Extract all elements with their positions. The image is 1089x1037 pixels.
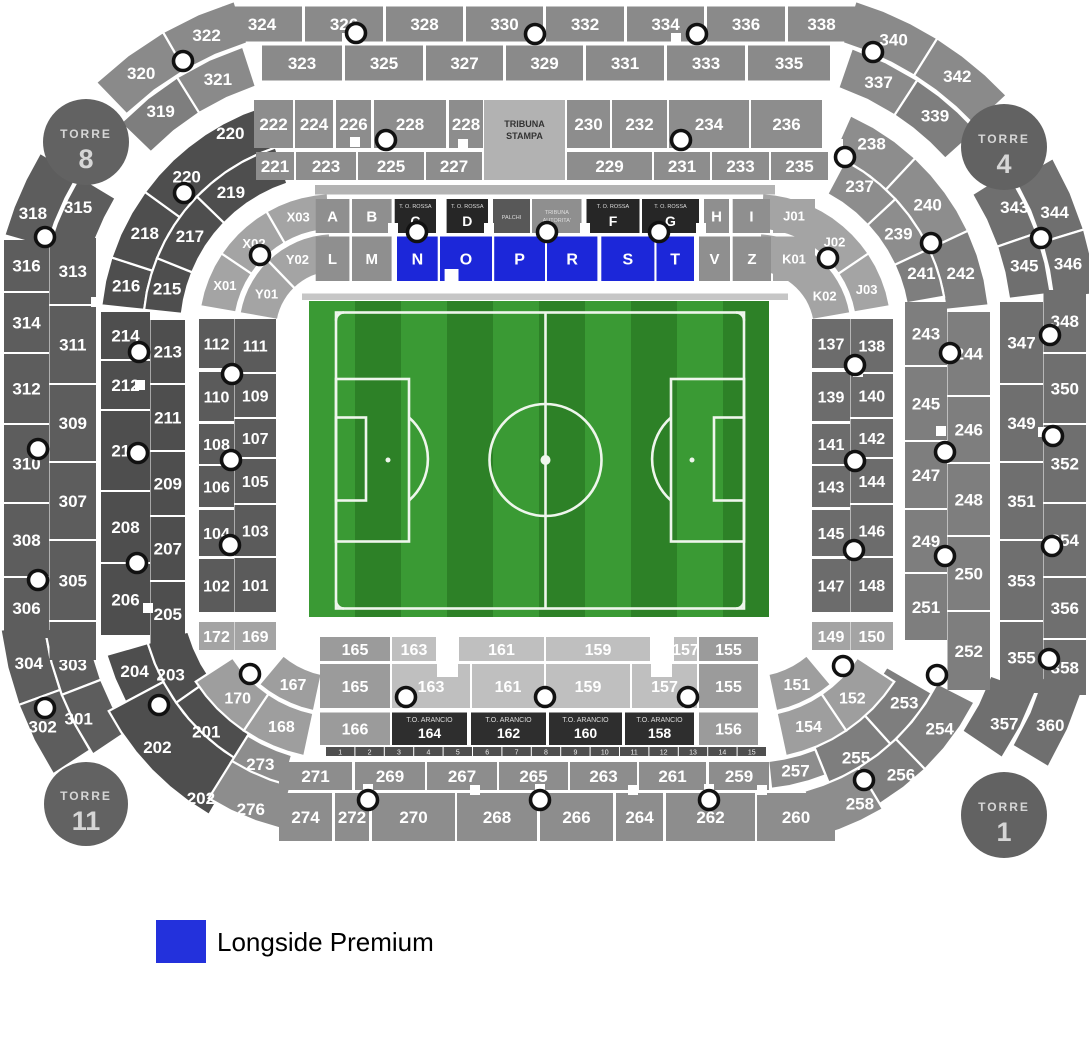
svg-text:320: 320 xyxy=(127,64,155,83)
svg-text:161: 161 xyxy=(495,679,522,696)
svg-text:167: 167 xyxy=(280,677,307,694)
svg-text:332: 332 xyxy=(571,15,599,34)
svg-text:15: 15 xyxy=(748,750,756,757)
svg-text:226: 226 xyxy=(339,115,367,134)
svg-text:263: 263 xyxy=(589,767,617,786)
svg-text:268: 268 xyxy=(483,808,511,827)
svg-text:204: 204 xyxy=(120,662,149,681)
svg-text:241: 241 xyxy=(907,264,935,283)
svg-text:152: 152 xyxy=(839,691,866,708)
svg-text:237: 237 xyxy=(845,177,873,196)
svg-text:338: 338 xyxy=(807,15,835,34)
svg-text:13: 13 xyxy=(689,750,697,757)
svg-text:169: 169 xyxy=(242,629,269,646)
svg-text:K02: K02 xyxy=(813,289,837,304)
svg-text:111: 111 xyxy=(243,338,268,355)
svg-text:F: F xyxy=(609,213,618,229)
svg-text:276: 276 xyxy=(237,800,265,819)
svg-text:252: 252 xyxy=(955,642,983,661)
svg-text:T. O. ROSSA: T. O. ROSSA xyxy=(451,204,484,210)
svg-text:251: 251 xyxy=(912,598,940,617)
svg-text:8: 8 xyxy=(78,144,93,174)
svg-text:10: 10 xyxy=(601,750,609,757)
svg-text:239: 239 xyxy=(884,224,912,243)
svg-text:Longside Premium: Longside Premium xyxy=(217,927,434,957)
svg-text:356: 356 xyxy=(1051,599,1079,618)
svg-text:256: 256 xyxy=(887,766,915,785)
svg-text:270: 270 xyxy=(399,808,427,827)
svg-text:4: 4 xyxy=(996,149,1011,179)
svg-text:302: 302 xyxy=(29,718,57,737)
svg-text:163: 163 xyxy=(401,642,428,659)
svg-text:265: 265 xyxy=(519,767,547,786)
svg-text:221: 221 xyxy=(261,157,289,176)
svg-text:A: A xyxy=(327,208,338,225)
svg-text:264: 264 xyxy=(625,808,654,827)
svg-text:213: 213 xyxy=(154,343,182,362)
svg-text:228: 228 xyxy=(396,115,424,134)
svg-text:101: 101 xyxy=(242,578,269,595)
svg-text:329: 329 xyxy=(530,54,558,73)
svg-text:257: 257 xyxy=(781,762,809,781)
svg-text:105: 105 xyxy=(242,474,269,491)
svg-text:K01: K01 xyxy=(782,251,806,266)
svg-text:306: 306 xyxy=(12,599,40,618)
svg-text:140: 140 xyxy=(858,388,885,405)
svg-text:225: 225 xyxy=(377,157,405,176)
svg-text:261: 261 xyxy=(658,767,686,786)
svg-text:158: 158 xyxy=(648,725,672,741)
svg-text:I: I xyxy=(749,208,753,225)
svg-text:344: 344 xyxy=(1040,203,1069,222)
svg-text:M: M xyxy=(366,251,379,268)
svg-text:202: 202 xyxy=(143,738,171,757)
svg-text:TORRE: TORRE xyxy=(60,789,112,803)
svg-text:243: 243 xyxy=(912,325,940,344)
svg-text:211: 211 xyxy=(154,409,181,428)
svg-text:165: 165 xyxy=(342,642,369,659)
svg-text:345: 345 xyxy=(1010,257,1038,276)
svg-text:2: 2 xyxy=(368,750,372,757)
svg-text:206: 206 xyxy=(111,591,139,610)
svg-text:328: 328 xyxy=(410,15,438,34)
svg-text:316: 316 xyxy=(12,257,40,276)
svg-text:107: 107 xyxy=(242,431,269,448)
svg-text:301: 301 xyxy=(65,709,93,728)
svg-text:331: 331 xyxy=(611,54,639,73)
svg-text:219: 219 xyxy=(217,183,245,202)
svg-text:157: 157 xyxy=(672,642,699,659)
svg-text:143: 143 xyxy=(818,479,845,496)
svg-text:T: T xyxy=(670,252,680,269)
svg-text:109: 109 xyxy=(242,388,269,405)
svg-text:1: 1 xyxy=(996,817,1011,847)
svg-text:T.O. ARANCIO: T.O. ARANCIO xyxy=(562,717,609,724)
svg-text:337: 337 xyxy=(864,73,892,92)
svg-text:314: 314 xyxy=(12,314,41,333)
svg-text:334: 334 xyxy=(651,15,680,34)
svg-text:248: 248 xyxy=(955,491,983,510)
svg-text:238: 238 xyxy=(857,135,885,154)
svg-text:223: 223 xyxy=(312,157,340,176)
svg-text:242: 242 xyxy=(947,264,975,283)
svg-text:149: 149 xyxy=(818,629,845,646)
svg-text:T.O. ARANCIO: T.O. ARANCIO xyxy=(636,717,683,724)
svg-text:142: 142 xyxy=(858,431,885,448)
svg-text:172: 172 xyxy=(203,629,230,646)
svg-text:1: 1 xyxy=(338,750,342,757)
svg-text:L: L xyxy=(328,251,337,268)
svg-text:12: 12 xyxy=(660,750,668,757)
svg-text:250: 250 xyxy=(955,565,983,584)
svg-text:205: 205 xyxy=(154,605,182,624)
svg-text:342: 342 xyxy=(943,67,971,86)
svg-text:147: 147 xyxy=(818,578,845,595)
svg-text:245: 245 xyxy=(912,395,940,414)
svg-text:249: 249 xyxy=(912,532,940,551)
svg-text:H: H xyxy=(711,208,722,225)
svg-text:148: 148 xyxy=(858,578,885,595)
svg-text:311: 311 xyxy=(59,336,86,355)
svg-text:233: 233 xyxy=(726,157,754,176)
svg-text:N: N xyxy=(412,252,424,269)
svg-text:209: 209 xyxy=(154,475,182,494)
svg-text:P: P xyxy=(514,252,525,269)
svg-text:318: 318 xyxy=(19,204,47,223)
svg-text:J01: J01 xyxy=(783,209,805,224)
svg-text:350: 350 xyxy=(1051,380,1079,399)
svg-text:159: 159 xyxy=(575,679,602,696)
svg-text:335: 335 xyxy=(775,54,803,73)
svg-text:163: 163 xyxy=(418,679,445,696)
svg-text:272: 272 xyxy=(338,808,366,827)
svg-text:165: 165 xyxy=(342,679,369,696)
svg-text:102: 102 xyxy=(203,578,230,595)
svg-text:8: 8 xyxy=(544,750,548,757)
svg-text:330: 330 xyxy=(490,15,518,34)
svg-text:138: 138 xyxy=(858,338,885,355)
svg-text:STAMPA: STAMPA xyxy=(506,131,543,141)
svg-text:161: 161 xyxy=(488,642,515,659)
svg-text:304: 304 xyxy=(15,654,44,673)
svg-text:254: 254 xyxy=(926,720,955,739)
svg-text:159: 159 xyxy=(585,642,612,659)
svg-text:336: 336 xyxy=(732,15,760,34)
svg-text:357: 357 xyxy=(990,714,1018,733)
svg-text:144: 144 xyxy=(858,474,885,491)
svg-text:168: 168 xyxy=(268,719,295,736)
svg-text:232: 232 xyxy=(625,115,653,134)
svg-text:229: 229 xyxy=(595,157,623,176)
svg-text:217: 217 xyxy=(176,227,204,246)
svg-text:103: 103 xyxy=(242,523,269,540)
svg-text:346: 346 xyxy=(1054,255,1082,274)
svg-text:O: O xyxy=(460,252,472,269)
svg-text:271: 271 xyxy=(301,767,329,786)
svg-text:274: 274 xyxy=(291,808,320,827)
svg-text:266: 266 xyxy=(562,808,590,827)
svg-text:308: 308 xyxy=(12,531,40,550)
svg-text:141: 141 xyxy=(818,437,845,454)
svg-text:309: 309 xyxy=(59,414,87,433)
svg-text:T. O. ROSSA: T. O. ROSSA xyxy=(597,204,630,210)
svg-text:T.O. ARANCIO: T.O. ARANCIO xyxy=(485,717,532,724)
svg-text:307: 307 xyxy=(59,492,87,511)
svg-text:TORRE: TORRE xyxy=(978,800,1030,814)
svg-text:224: 224 xyxy=(300,115,329,134)
svg-text:TORRE: TORRE xyxy=(978,132,1030,146)
svg-text:313: 313 xyxy=(59,262,87,281)
svg-text:323: 323 xyxy=(288,54,316,73)
svg-text:355: 355 xyxy=(1007,649,1035,668)
svg-text:110: 110 xyxy=(204,389,230,406)
svg-text:260: 260 xyxy=(782,808,810,827)
svg-text:T.O. ARANCIO: T.O. ARANCIO xyxy=(406,717,453,724)
svg-text:312: 312 xyxy=(12,380,40,399)
svg-text:234: 234 xyxy=(695,115,724,134)
svg-text:J03: J03 xyxy=(856,282,878,297)
svg-text:9: 9 xyxy=(573,750,577,757)
svg-text:106: 106 xyxy=(203,479,230,496)
svg-text:236: 236 xyxy=(772,115,800,134)
svg-text:4: 4 xyxy=(426,750,430,757)
svg-text:351: 351 xyxy=(1007,492,1035,511)
svg-text:253: 253 xyxy=(890,693,918,712)
svg-text:327: 327 xyxy=(450,54,478,73)
svg-text:T. O. ROSSA: T. O. ROSSA xyxy=(654,204,687,210)
svg-text:315: 315 xyxy=(64,198,92,217)
svg-text:360: 360 xyxy=(1036,716,1064,735)
svg-text:227: 227 xyxy=(440,157,468,176)
svg-text:Y01: Y01 xyxy=(255,286,278,301)
svg-text:259: 259 xyxy=(725,767,753,786)
svg-text:202: 202 xyxy=(187,789,215,808)
svg-text:340: 340 xyxy=(879,31,907,50)
svg-text:162: 162 xyxy=(497,725,521,741)
svg-text:322: 322 xyxy=(192,26,220,45)
svg-text:267: 267 xyxy=(448,767,476,786)
svg-text:222: 222 xyxy=(259,115,287,134)
svg-text:Z: Z xyxy=(747,251,756,268)
svg-text:5: 5 xyxy=(456,750,460,757)
svg-text:347: 347 xyxy=(1007,334,1035,353)
svg-text:203: 203 xyxy=(157,665,185,684)
svg-text:PALCHI: PALCHI xyxy=(502,215,522,221)
svg-text:D: D xyxy=(462,213,472,229)
svg-text:230: 230 xyxy=(574,115,602,134)
svg-text:333: 333 xyxy=(692,54,720,73)
svg-text:208: 208 xyxy=(111,518,139,537)
svg-text:258: 258 xyxy=(846,795,874,814)
svg-text:V: V xyxy=(709,251,719,268)
svg-text:228: 228 xyxy=(452,115,480,134)
svg-text:353: 353 xyxy=(1007,572,1035,591)
svg-text:14: 14 xyxy=(719,750,727,757)
svg-text:319: 319 xyxy=(147,102,175,121)
svg-text:154: 154 xyxy=(795,719,822,736)
svg-text:325: 325 xyxy=(370,54,398,73)
svg-text:349: 349 xyxy=(1007,414,1035,433)
svg-text:X01: X01 xyxy=(213,278,236,293)
svg-text:269: 269 xyxy=(376,767,404,786)
svg-text:157: 157 xyxy=(651,679,678,696)
svg-text:218: 218 xyxy=(131,224,159,243)
svg-text:235: 235 xyxy=(785,157,813,176)
svg-text:137: 137 xyxy=(818,336,845,353)
svg-text:R: R xyxy=(566,252,578,269)
svg-text:155: 155 xyxy=(715,642,742,659)
svg-text:156: 156 xyxy=(715,722,742,739)
svg-text:321: 321 xyxy=(204,70,232,89)
svg-text:11: 11 xyxy=(631,750,638,757)
svg-text:201: 201 xyxy=(192,723,220,742)
svg-text:3: 3 xyxy=(397,750,401,757)
svg-text:207: 207 xyxy=(154,540,182,559)
svg-text:145: 145 xyxy=(818,526,845,543)
svg-text:TORRE: TORRE xyxy=(60,127,112,141)
svg-text:S: S xyxy=(622,252,633,269)
svg-text:305: 305 xyxy=(59,572,87,591)
svg-text:Y02: Y02 xyxy=(286,252,309,267)
svg-text:155: 155 xyxy=(715,679,742,696)
svg-text:151: 151 xyxy=(784,677,811,694)
svg-text:150: 150 xyxy=(858,629,885,646)
svg-text:7: 7 xyxy=(515,750,519,757)
svg-text:247: 247 xyxy=(912,466,940,485)
svg-text:164: 164 xyxy=(418,725,442,741)
svg-text:216: 216 xyxy=(112,277,140,296)
svg-text:324: 324 xyxy=(248,15,277,34)
svg-text:6: 6 xyxy=(485,750,489,757)
svg-text:TRIBUNA: TRIBUNA xyxy=(545,210,569,216)
svg-text:166: 166 xyxy=(342,722,369,739)
svg-text:139: 139 xyxy=(818,389,845,406)
svg-text:B: B xyxy=(366,208,377,225)
svg-text:246: 246 xyxy=(955,421,983,440)
svg-text:112: 112 xyxy=(204,336,230,353)
svg-text:339: 339 xyxy=(921,107,949,126)
svg-text:170: 170 xyxy=(224,691,251,708)
svg-text:352: 352 xyxy=(1051,455,1079,474)
svg-text:215: 215 xyxy=(153,279,181,298)
svg-text:146: 146 xyxy=(858,523,885,540)
svg-text:X03: X03 xyxy=(287,210,310,225)
svg-text:TRIBUNA: TRIBUNA xyxy=(504,119,545,129)
svg-text:220: 220 xyxy=(216,124,244,143)
svg-text:240: 240 xyxy=(914,196,942,215)
svg-text:T. O. ROSSA: T. O. ROSSA xyxy=(399,204,432,210)
svg-text:231: 231 xyxy=(668,157,696,176)
svg-text:160: 160 xyxy=(574,725,598,741)
svg-text:11: 11 xyxy=(72,806,101,836)
